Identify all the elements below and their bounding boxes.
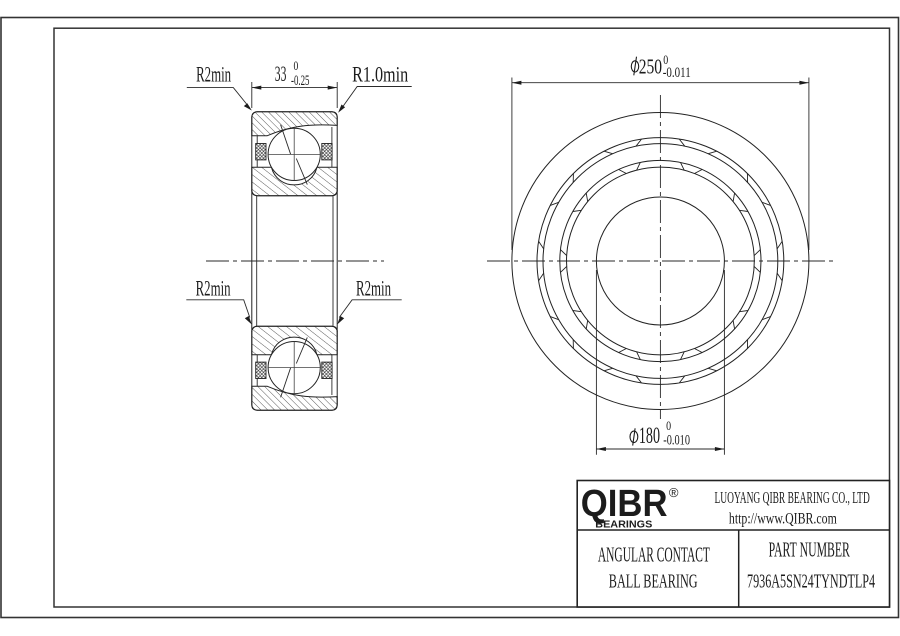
svg-text:-0.25: -0.25 [291,73,310,89]
svg-text:0: 0 [666,418,671,433]
svg-text:R2min: R2min [196,62,231,87]
svg-text:250: 250 [639,54,662,78]
svg-text:®: ® [669,485,679,500]
svg-text:http://www.QIBR.com: http://www.QIBR.com [729,510,837,527]
svg-text:0: 0 [294,58,299,73]
svg-text:-0.010: -0.010 [663,433,690,449]
svg-text:R2min: R2min [356,275,391,300]
svg-text:33: 33 [275,61,287,86]
svg-text:-0.011: -0.011 [663,65,691,81]
svg-text:LUOYANG QIBR BEARING CO., LTD: LUOYANG QIBR BEARING CO., LTD [715,488,870,507]
svg-text:7936A5SN24TYNDTLP4: 7936A5SN24TYNDTLP4 [747,571,875,593]
svg-text:BEARINGS: BEARINGS [595,519,652,531]
svg-text:R1.0min: R1.0min [352,62,408,87]
svg-text:PART NUMBER: PART NUMBER [769,537,850,561]
svg-text:ANGULAR CONTACT: ANGULAR CONTACT [598,543,710,567]
svg-text:180: 180 [639,423,660,448]
svg-text:BALL BEARING: BALL BEARING [609,571,698,593]
svg-text:R2min: R2min [196,275,231,300]
